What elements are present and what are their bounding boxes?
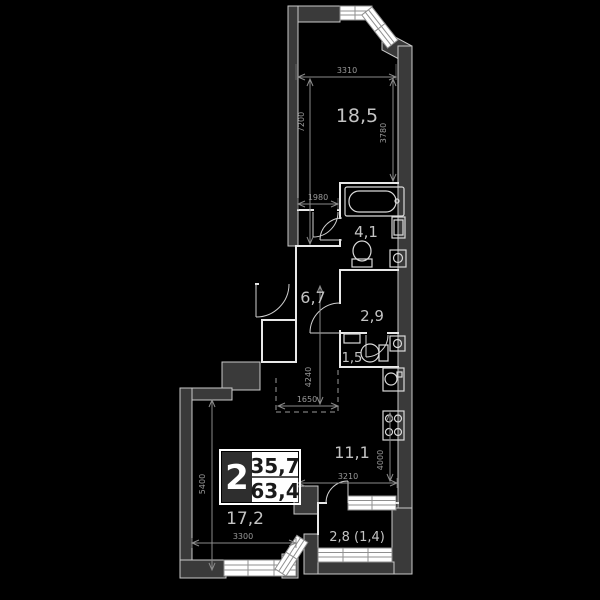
dim-kitchen-depth: 4000	[376, 450, 385, 470]
badge-total-area: 63,4	[250, 479, 299, 503]
door-wc	[366, 335, 388, 357]
label-hallway-area: 6,7	[300, 288, 325, 307]
wall-balcony-pier	[304, 534, 318, 574]
dim-hall-depth: 4240	[304, 367, 313, 387]
bathroom-toilet	[352, 241, 372, 267]
wall-left-lower	[180, 388, 192, 578]
wc-sink	[344, 334, 360, 343]
dim-niche-width: 1650	[297, 395, 317, 404]
badge-rooms-count: 2	[225, 458, 249, 498]
window-bedroom-angled	[362, 7, 398, 48]
label-balcony-area: 2,8 (1,4)	[329, 530, 385, 545]
dim-living-height: 5400	[198, 474, 207, 494]
apartment-badge: 2 35,7 63,4	[220, 450, 300, 504]
label-living-area: 17,2	[226, 509, 264, 529]
wall-living-bottom	[180, 560, 226, 578]
dim-living-width: 3300	[233, 532, 253, 541]
dim-bedroom-height-right: 3780	[379, 123, 388, 143]
badge-living-area: 35,7	[250, 454, 299, 478]
label-wc-area: 1,5	[342, 351, 363, 366]
label-closet-area: 2,9	[360, 307, 384, 325]
door-balcony	[326, 481, 348, 503]
floor-plan-canvas: 3310 7200 3780 1980 4240 1650 3210 4000 …	[0, 0, 600, 600]
door-closet	[310, 303, 340, 333]
dim-bedroom-height: 7200	[297, 112, 306, 132]
label-bathroom-area: 4,1	[354, 223, 378, 241]
partition-wardrobe-niche	[262, 284, 296, 362]
dim-hall-door: 1980	[308, 193, 328, 202]
label-kitchen-area: 11,1	[334, 443, 370, 462]
door-bedroom	[313, 212, 338, 237]
floor-plan-page: 3310 7200 3780 1980 4240 1650 3210 4000 …	[0, 0, 600, 600]
wc-toilet	[361, 344, 388, 362]
wall-living-step	[222, 362, 260, 390]
window-balcony-glazing	[318, 548, 392, 562]
dim-kitchen-width: 3210	[338, 472, 358, 481]
wall-right-balcony	[392, 508, 412, 574]
dim-bedroom-width: 3310	[337, 66, 357, 75]
wall-right	[398, 46, 412, 508]
bathtub	[345, 187, 404, 216]
wall-balcony-bottom	[318, 562, 394, 574]
label-bedroom-area: 18,5	[336, 105, 378, 127]
window-kitchen	[348, 496, 396, 510]
door-living	[256, 284, 289, 317]
